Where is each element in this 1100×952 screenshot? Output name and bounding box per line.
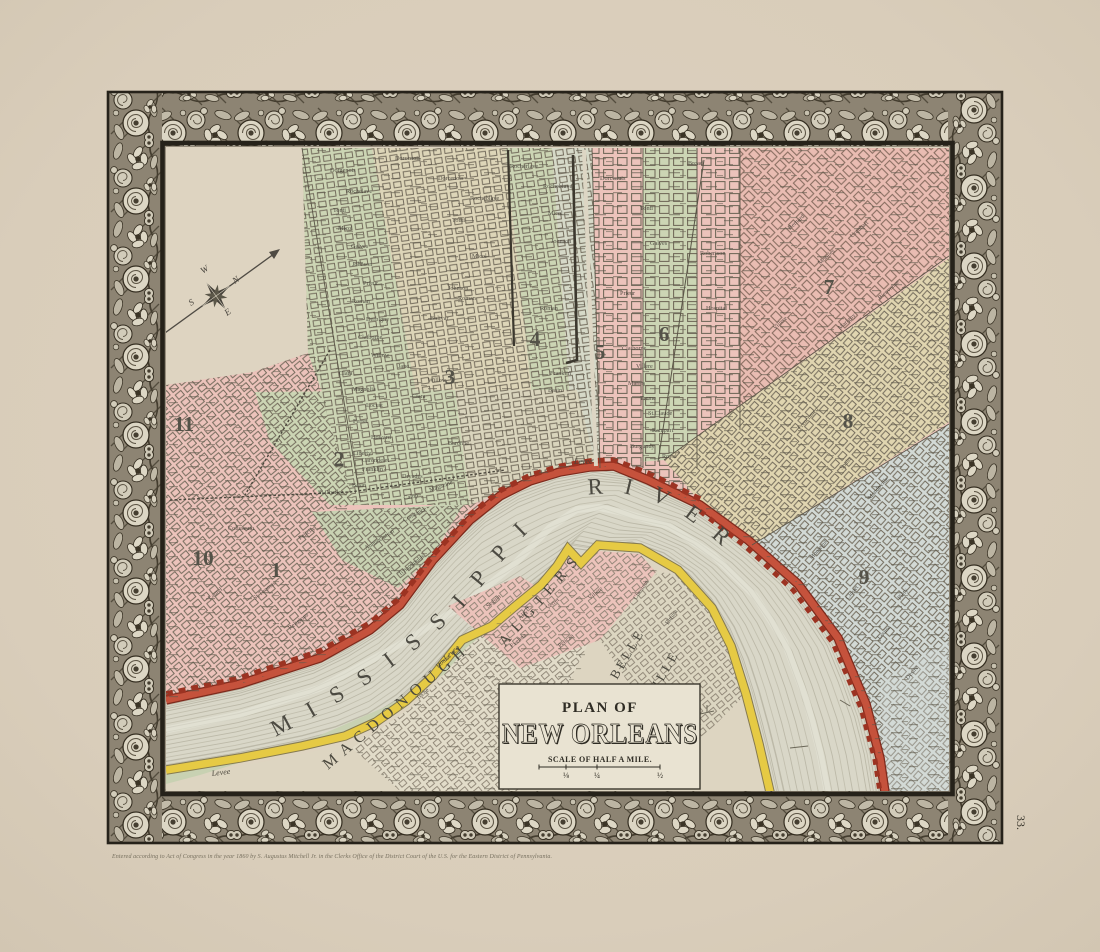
- svg-text:Basin: Basin: [352, 482, 366, 489]
- svg-text:Rampart: Rampart: [652, 427, 674, 434]
- svg-text:Claiborne: Claiborne: [622, 345, 647, 352]
- svg-text:Treme: Treme: [640, 395, 656, 402]
- svg-text:Broad: Broad: [688, 160, 704, 167]
- svg-text:Tonti: Tonti: [452, 217, 465, 224]
- svg-text:3: 3: [445, 365, 456, 389]
- svg-text:Johnson: Johnson: [551, 238, 571, 245]
- svg-text:Dryades: Dryades: [402, 473, 423, 480]
- svg-text:Tonti: Tonti: [333, 207, 346, 214]
- svg-text:Jane: Jane: [398, 363, 409, 370]
- svg-text:Colisseum: Colisseum: [228, 525, 254, 532]
- svg-text:4: 4: [530, 327, 541, 351]
- svg-text:Rocherlave: Rocherlave: [510, 163, 538, 170]
- svg-text:Johnson: Johnson: [448, 285, 468, 292]
- svg-text:Magnolia: Magnolia: [352, 386, 376, 393]
- svg-text:Franklin: Franklin: [550, 370, 571, 377]
- svg-text:Roman: Roman: [352, 298, 370, 305]
- svg-text:6: 6: [659, 322, 670, 346]
- svg-text:8: 8: [843, 409, 854, 433]
- svg-text:Villere: Villere: [636, 363, 653, 370]
- svg-text:Ferret: Ferret: [353, 418, 368, 425]
- svg-text:Dorcenois: Dorcenois: [395, 155, 421, 162]
- svg-text:⅛: ⅛: [563, 771, 569, 780]
- svg-text:11: 11: [174, 412, 194, 436]
- svg-text:Robertson: Robertson: [700, 250, 725, 257]
- svg-text:1: 1: [271, 558, 282, 582]
- svg-text:Micol: Micol: [548, 210, 563, 217]
- svg-text:Clara: Clara: [412, 393, 426, 400]
- svg-text:NEW ORLEANS: NEW ORLEANS: [502, 719, 698, 750]
- svg-text:Franklin: Franklin: [362, 466, 383, 473]
- svg-text:Rocheblave: Rocheblave: [543, 183, 572, 190]
- svg-text:½: ½: [657, 771, 663, 780]
- svg-text:Roman: Roman: [458, 295, 476, 302]
- svg-text:Marais: Marais: [628, 380, 646, 387]
- svg-text:Locust: Locust: [366, 402, 383, 409]
- svg-text:Rocheblave: Rocheblave: [470, 195, 499, 202]
- svg-text:Derbigny: Derbigny: [366, 316, 390, 323]
- svg-text:Prieur: Prieur: [363, 280, 378, 287]
- svg-text:9: 9: [859, 565, 870, 589]
- svg-text:Prieur: Prieur: [620, 290, 635, 297]
- svg-text:St.Claude: St.Claude: [648, 410, 672, 417]
- svg-text:Carondelet: Carondelet: [362, 457, 389, 464]
- svg-text:Basin: Basin: [548, 387, 562, 394]
- svg-text:Galves: Galves: [351, 243, 369, 250]
- svg-text:Royal: Royal: [662, 453, 677, 460]
- svg-text:7: 7: [824, 275, 835, 299]
- svg-text:¼: ¼: [594, 771, 600, 780]
- svg-text:Dorgenois: Dorgenois: [330, 167, 356, 174]
- svg-text:Rochelave: Rochelave: [346, 188, 372, 195]
- svg-text:SCALE OF HALF A MILE.: SCALE OF HALF A MILE.: [548, 755, 652, 764]
- svg-text:Burgundy: Burgundy: [630, 443, 656, 450]
- svg-text:Johnson: Johnson: [352, 261, 372, 268]
- svg-text:Micol: Micol: [338, 225, 353, 232]
- svg-text:Clara: Clara: [339, 370, 353, 377]
- svg-text:Dorcenuis: Dorcenuis: [600, 175, 626, 182]
- svg-text:Howard: Howard: [371, 434, 392, 441]
- svg-text:Levee: Levee: [573, 457, 593, 466]
- svg-text:33.: 33.: [1014, 815, 1028, 830]
- svg-text:5: 5: [595, 340, 606, 364]
- svg-text:Micol: Micol: [472, 253, 487, 260]
- svg-text:Hospital: Hospital: [706, 305, 727, 312]
- svg-text:Baronne: Baronne: [448, 440, 469, 447]
- svg-text:Galves: Galves: [650, 240, 668, 247]
- svg-text:PLAN OF: PLAN OF: [562, 700, 638, 716]
- svg-text:St.Charles: St.Charles: [318, 489, 344, 496]
- svg-text:2: 2: [334, 447, 345, 471]
- svg-text:Liberty: Liberty: [353, 450, 372, 457]
- svg-text:Roman: Roman: [540, 305, 558, 312]
- svg-text:Bolivar: Bolivar: [430, 315, 449, 322]
- svg-text:Willow: Willow: [371, 352, 390, 359]
- svg-text:Claiborne: Claiborne: [358, 334, 383, 341]
- svg-text:Dorcenois: Dorcenois: [438, 175, 464, 182]
- svg-text:Entered according to Act of Co: Entered according to Act of Congress in …: [111, 853, 552, 860]
- svg-text:Tonti: Tonti: [640, 205, 653, 212]
- svg-text:10: 10: [192, 546, 214, 570]
